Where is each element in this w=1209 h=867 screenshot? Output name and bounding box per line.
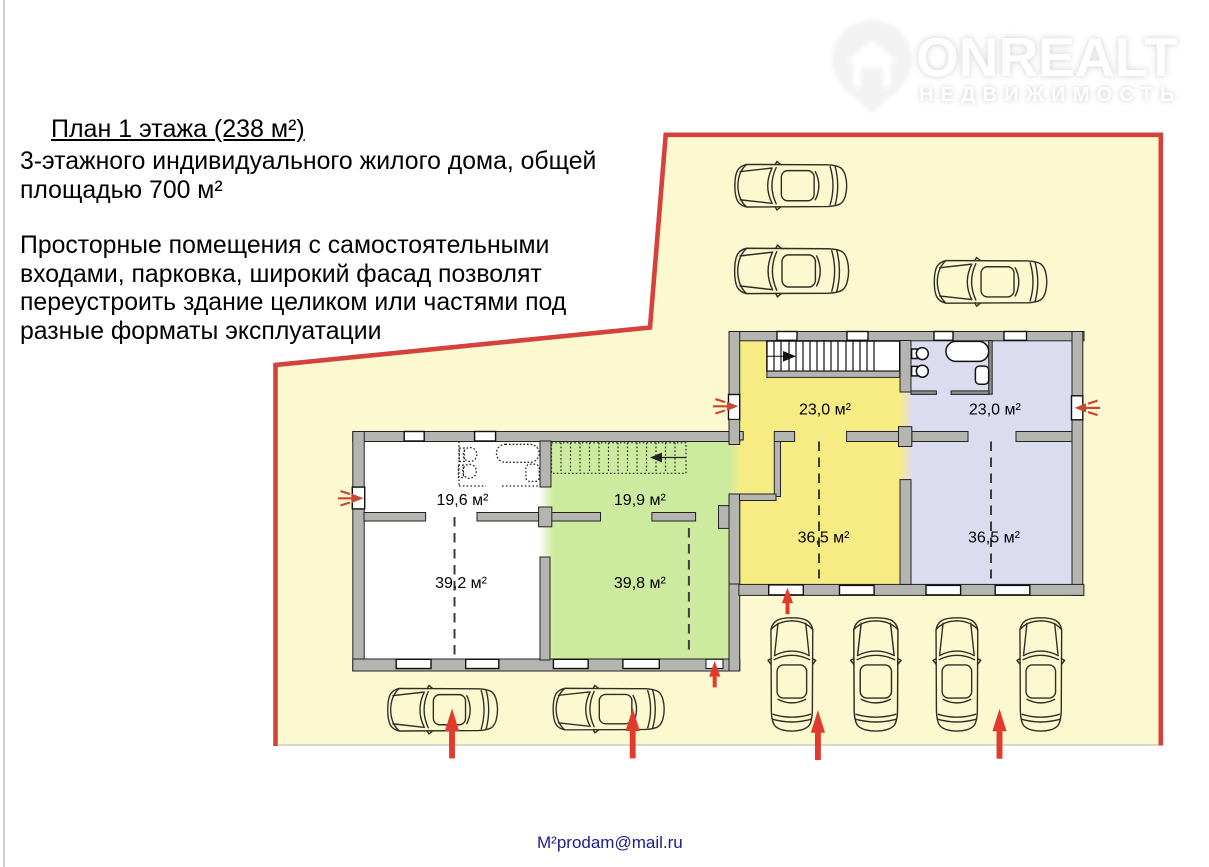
svg-text:19,6 м²: 19,6 м²	[437, 492, 490, 509]
svg-text:39,2 м²: 39,2 м²	[435, 575, 488, 592]
svg-text:36,5 м²: 36,5 м²	[968, 530, 1021, 547]
svg-text:19,9 м²: 19,9 м²	[614, 492, 667, 509]
svg-text:23,0 м²: 23,0 м²	[969, 401, 1022, 418]
svg-text:39,8 м²: 39,8 м²	[614, 575, 667, 592]
svg-text:23,0 м²: 23,0 м²	[799, 401, 852, 418]
svg-text:36,5 м²: 36,5 м²	[798, 530, 851, 547]
